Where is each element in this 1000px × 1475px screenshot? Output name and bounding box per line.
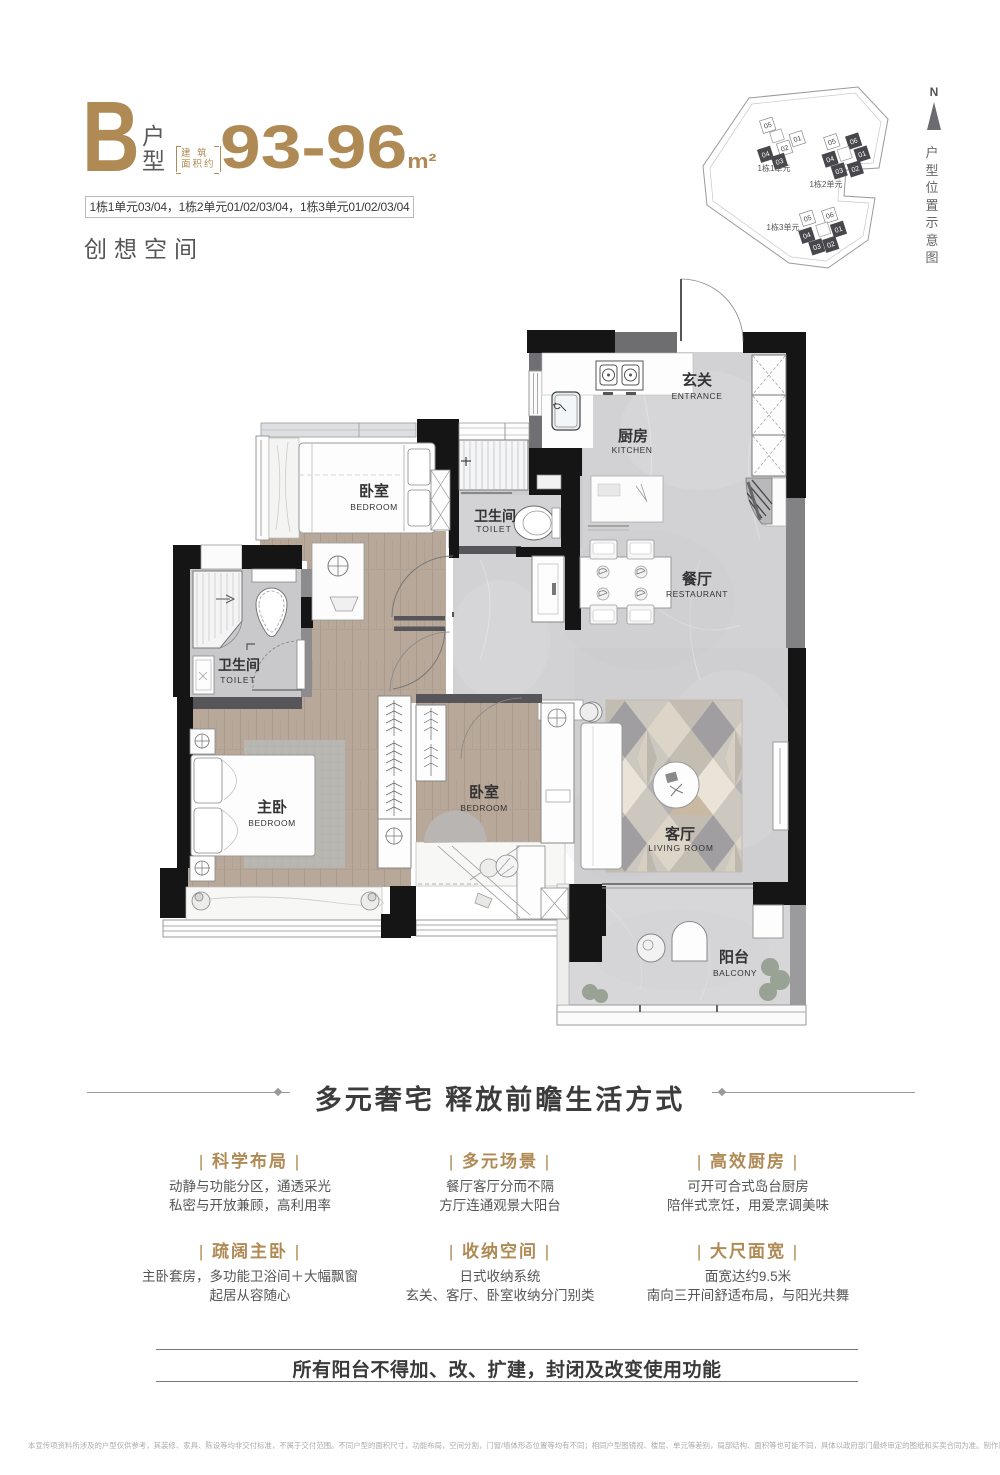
svg-text:BEDROOM: BEDROOM	[460, 803, 507, 813]
svg-text:N: N	[930, 85, 939, 99]
svg-text:TOILET: TOILET	[476, 524, 512, 534]
svg-text:卫生间: 卫生间	[218, 657, 260, 673]
svg-text:TOILET: TOILET	[220, 675, 256, 685]
svg-text:卧室: 卧室	[359, 482, 389, 500]
svg-text:BEDROOM: BEDROOM	[248, 818, 295, 828]
svg-text:BALCONY: BALCONY	[713, 968, 757, 978]
svg-text:客厅: 客厅	[664, 825, 695, 843]
svg-text:阳台: 阳台	[719, 948, 749, 966]
svg-text:厨房: 厨房	[618, 427, 648, 445]
svg-text:主卧: 主卧	[257, 798, 287, 816]
svg-text:BEDROOM: BEDROOM	[350, 502, 397, 512]
svg-text:餐厅: 餐厅	[682, 570, 712, 588]
svg-text:1栋2单元: 1栋2单元	[810, 179, 843, 189]
svg-text:ENTRANCE: ENTRANCE	[672, 391, 723, 401]
svg-text:卫生间: 卫生间	[474, 508, 516, 524]
svg-text:RESTAURANT: RESTAURANT	[666, 589, 728, 599]
svg-text:玄关: 玄关	[682, 371, 712, 389]
svg-text:卧室: 卧室	[469, 783, 499, 801]
svg-text:KITCHEN: KITCHEN	[612, 445, 653, 455]
svg-text:LIVING ROOM: LIVING ROOM	[648, 843, 713, 853]
svg-text:1栋3单元: 1栋3单元	[767, 222, 800, 232]
svg-text:1栋1单元: 1栋1单元	[758, 163, 791, 173]
